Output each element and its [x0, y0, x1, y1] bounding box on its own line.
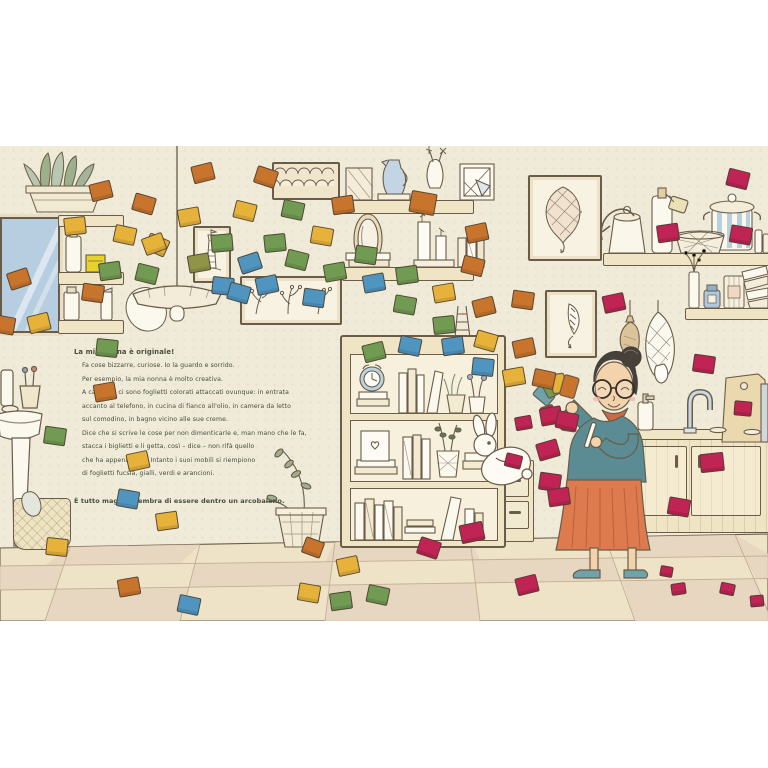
sticky-note — [514, 415, 533, 432]
sticky-note — [535, 438, 561, 461]
sticky-note — [190, 162, 216, 185]
sticky-note — [460, 255, 486, 278]
sticky-note — [397, 335, 422, 357]
sticky-note — [464, 222, 489, 244]
sticky-note — [43, 426, 67, 447]
sticky-note — [432, 315, 456, 335]
sticky-note — [725, 168, 751, 191]
sticky-note — [362, 272, 387, 294]
sticky-note — [408, 190, 437, 216]
sticky-note — [361, 341, 387, 364]
sticky-note — [253, 165, 279, 189]
sticky-note — [155, 511, 179, 532]
sticky-note — [26, 312, 52, 335]
sticky-note — [335, 555, 360, 577]
sticky-note — [323, 261, 348, 283]
sticky-note — [93, 381, 118, 403]
sticky-note — [310, 225, 335, 247]
sticky-note — [45, 537, 69, 557]
sticky-note — [232, 200, 258, 223]
sticky-note — [284, 249, 310, 272]
sticky-note — [6, 267, 32, 291]
sticky-note — [331, 195, 355, 216]
sticky-note — [254, 274, 279, 296]
sticky-note — [134, 263, 160, 286]
sticky-note — [416, 536, 442, 560]
sticky-note — [177, 206, 202, 228]
sticky-note — [471, 357, 495, 377]
sticky-note — [547, 487, 571, 508]
sticky-note — [210, 233, 233, 253]
sticky-note — [601, 292, 626, 314]
illustration-scene: La mia nonna è originale! Fa cose bizzar… — [0, 146, 768, 621]
sticky-note — [504, 452, 524, 470]
sticky-note — [733, 400, 752, 417]
sticky-note — [131, 192, 157, 215]
sticky-note — [471, 296, 497, 319]
sticky-note — [125, 450, 150, 472]
sticky-note — [117, 576, 142, 598]
sticky-note — [280, 199, 305, 221]
sticky-note — [656, 223, 680, 244]
sticky-note — [301, 536, 326, 559]
sticky-note — [699, 452, 725, 473]
sticky-note — [393, 294, 418, 316]
sticky-note — [441, 336, 465, 357]
sticky-note — [531, 368, 556, 390]
sticky-note — [98, 261, 122, 282]
sticky-note — [81, 283, 105, 304]
sticky-note — [554, 410, 579, 432]
sticky-note — [176, 594, 201, 616]
sticky-note — [750, 594, 765, 607]
sticky-note — [354, 245, 378, 266]
sticky-note — [692, 354, 716, 375]
sticky-note — [667, 496, 692, 518]
sticky-note — [187, 252, 212, 274]
sticky-note — [329, 591, 353, 612]
book-page: La mia nonna è originale! Fa cose bizzar… — [0, 0, 768, 768]
sticky-notes-layer — [0, 146, 768, 621]
sticky-note — [263, 233, 287, 253]
sticky-note — [395, 265, 419, 286]
sticky-note — [226, 281, 252, 304]
sticky-note — [511, 290, 535, 311]
sticky-note — [112, 224, 137, 246]
sticky-note — [511, 337, 536, 359]
sticky-note — [473, 329, 499, 352]
sticky-note — [502, 366, 527, 388]
sticky-note — [432, 282, 457, 304]
sticky-note — [670, 582, 687, 596]
sticky-note — [237, 251, 263, 275]
sticky-note — [719, 582, 736, 597]
sticky-note — [0, 314, 16, 336]
sticky-note — [116, 488, 141, 510]
sticky-note — [458, 521, 485, 545]
sticky-note — [63, 216, 87, 236]
sticky-note — [659, 565, 674, 578]
sticky-note — [729, 224, 754, 246]
sticky-note — [302, 288, 326, 309]
sticky-note — [95, 338, 119, 358]
sticky-note — [365, 584, 390, 606]
sticky-note — [88, 180, 114, 203]
sticky-note — [514, 574, 540, 597]
sticky-note — [297, 582, 322, 604]
